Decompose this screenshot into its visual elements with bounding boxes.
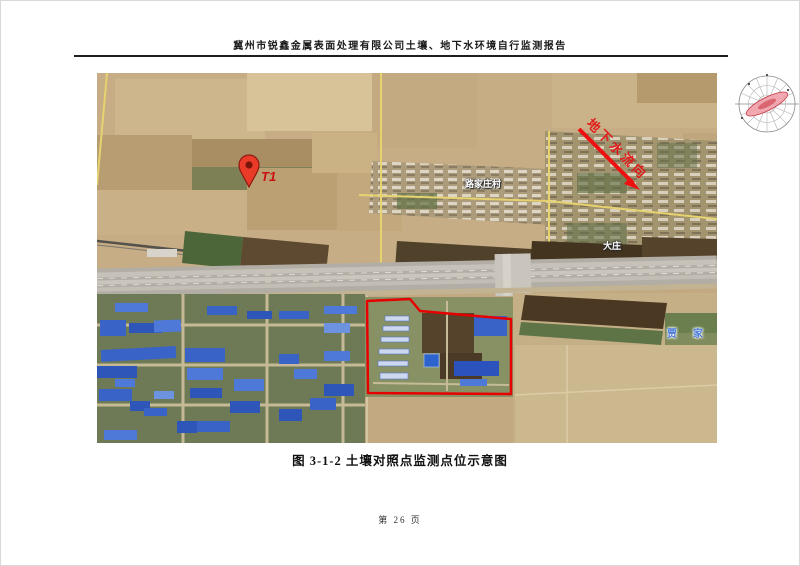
wind-rose-icon — [735, 73, 799, 139]
figure-caption: 图 3-1-2 土壤对照点监测点位示意图 — [1, 450, 799, 469]
satellite-map-figure: T1 地下水流向 路家庄村 大庄 贾家庄 — [97, 73, 717, 443]
page-header-title: 冀州市锐鑫金属表面处理有限公司土壤、地下水环境自行监测报告 — [1, 37, 799, 52]
header-rule — [74, 55, 728, 57]
page-number: 第 26 页 — [1, 513, 799, 526]
report-page: 冀州市锐鑫金属表面处理有限公司土壤、地下水环境自行监测报告 — [0, 0, 800, 566]
industrial-park — [97, 294, 365, 443]
satellite-map-art — [97, 73, 717, 443]
farmland-bottom-right — [513, 293, 717, 443]
